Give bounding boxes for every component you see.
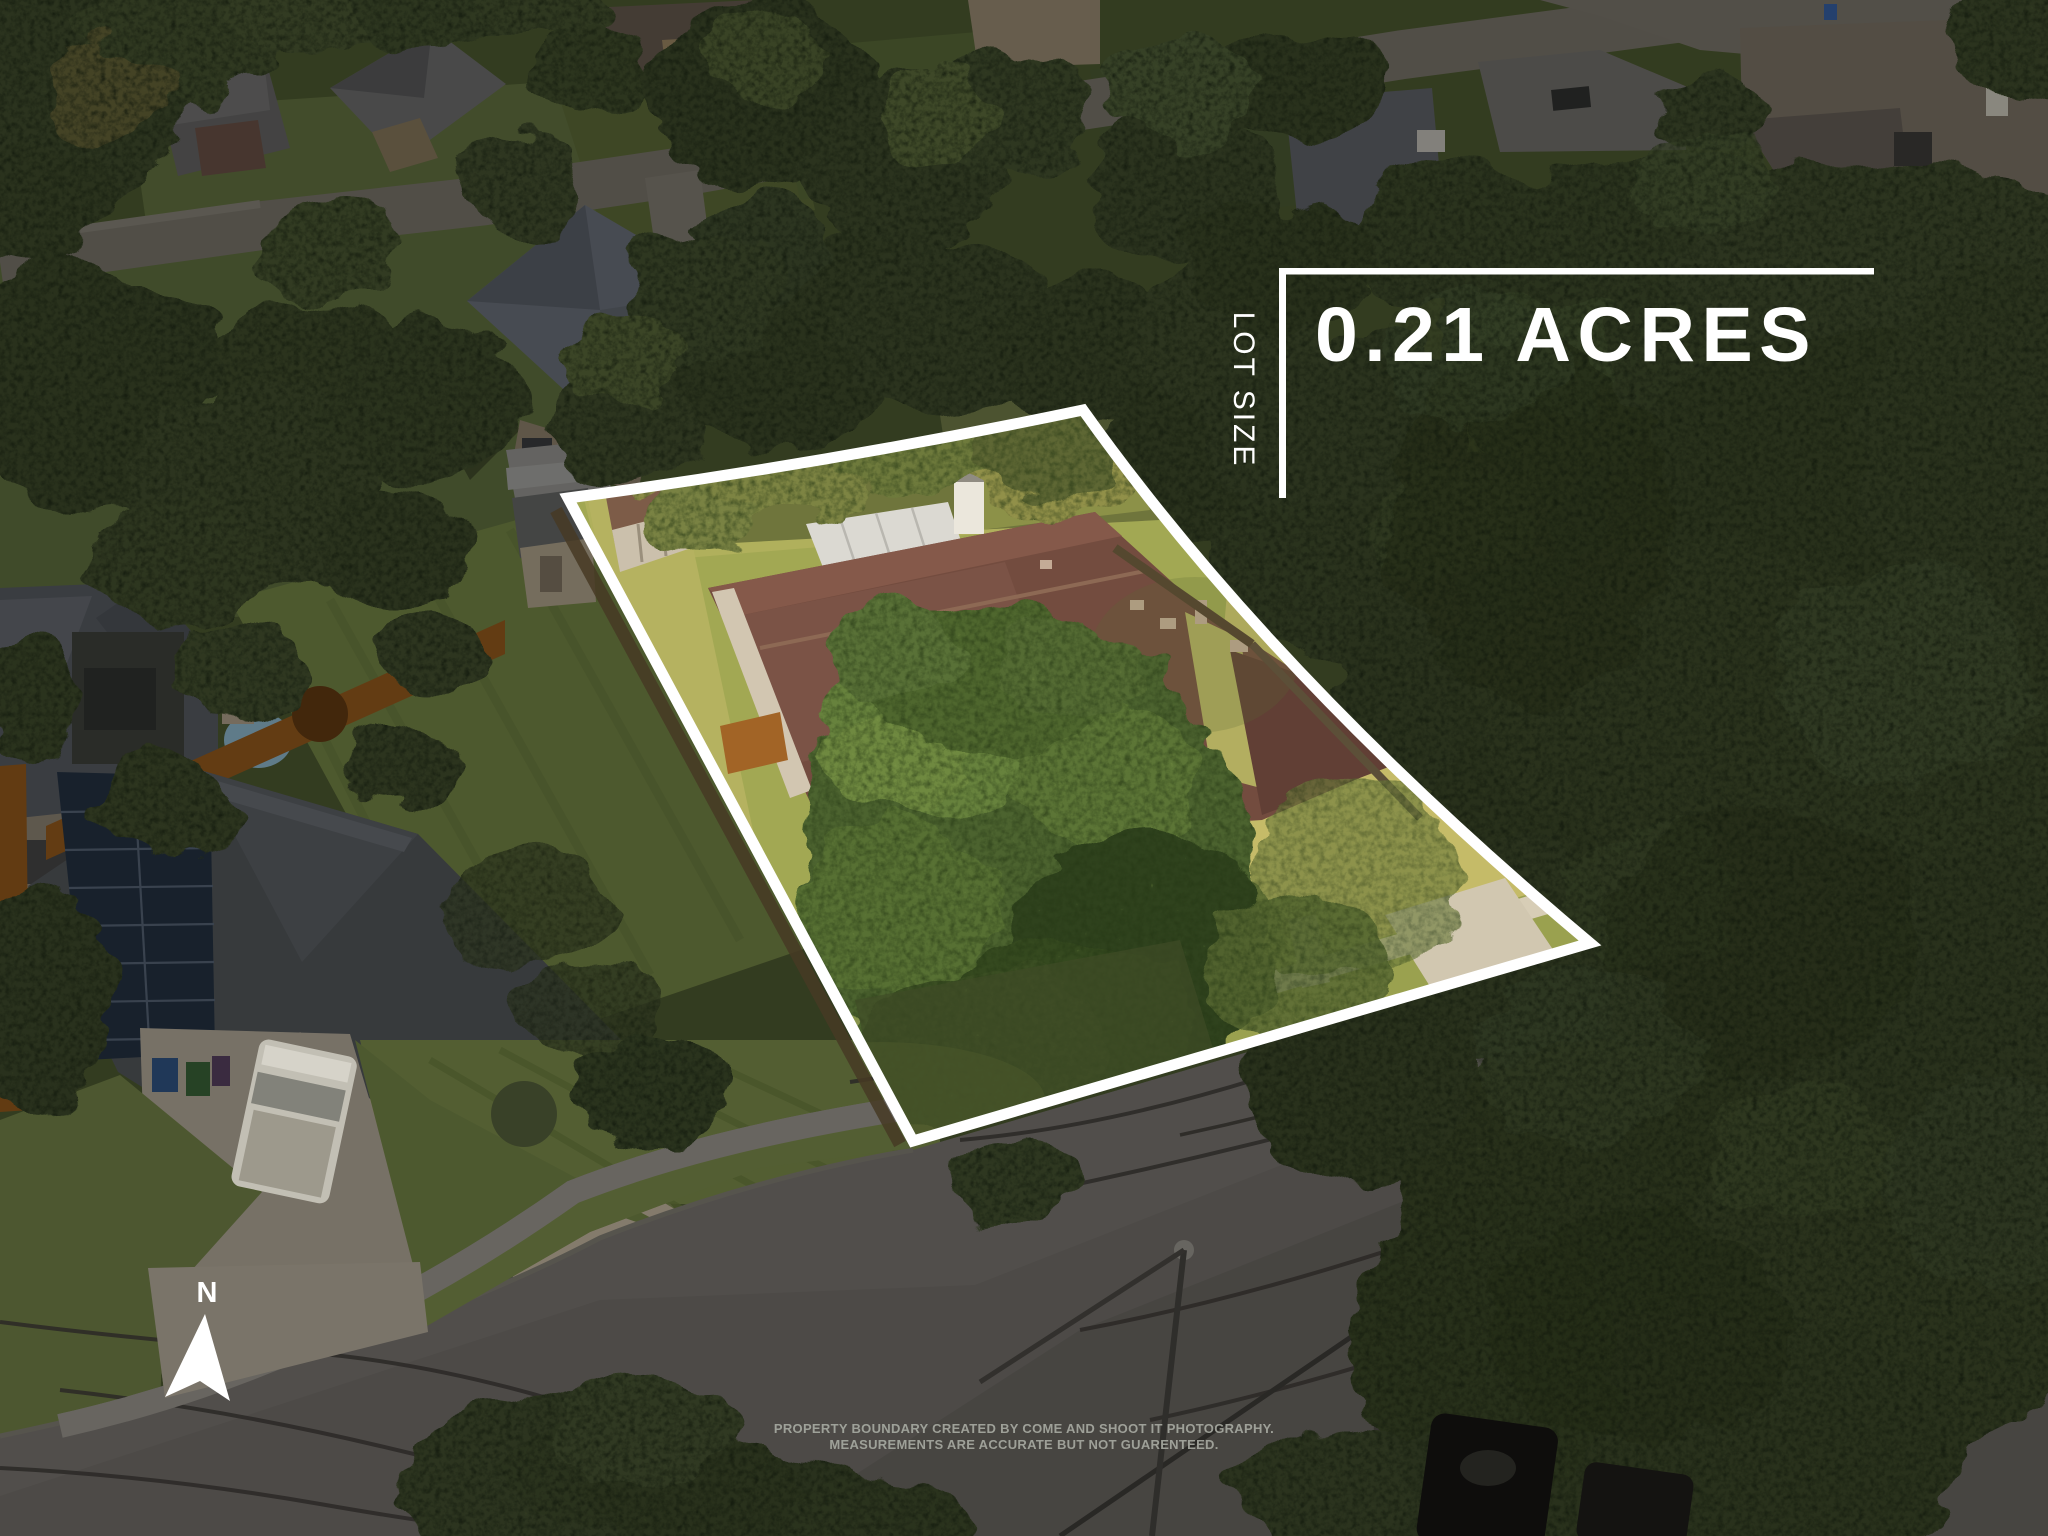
svg-text:MEASUREMENTS ARE ACCURATE BUT: MEASUREMENTS ARE ACCURATE BUT NOT GUAREN… [829,1437,1218,1452]
svg-text:PROPERTY BOUNDARY CREATED BY C: PROPERTY BOUNDARY CREATED BY COME AND SH… [774,1421,1274,1436]
svg-text:0.21 ACRES: 0.21 ACRES [1315,292,1817,378]
svg-text:N: N [197,1277,218,1309]
svg-text:LOT SIZE: LOT SIZE [1227,312,1260,469]
